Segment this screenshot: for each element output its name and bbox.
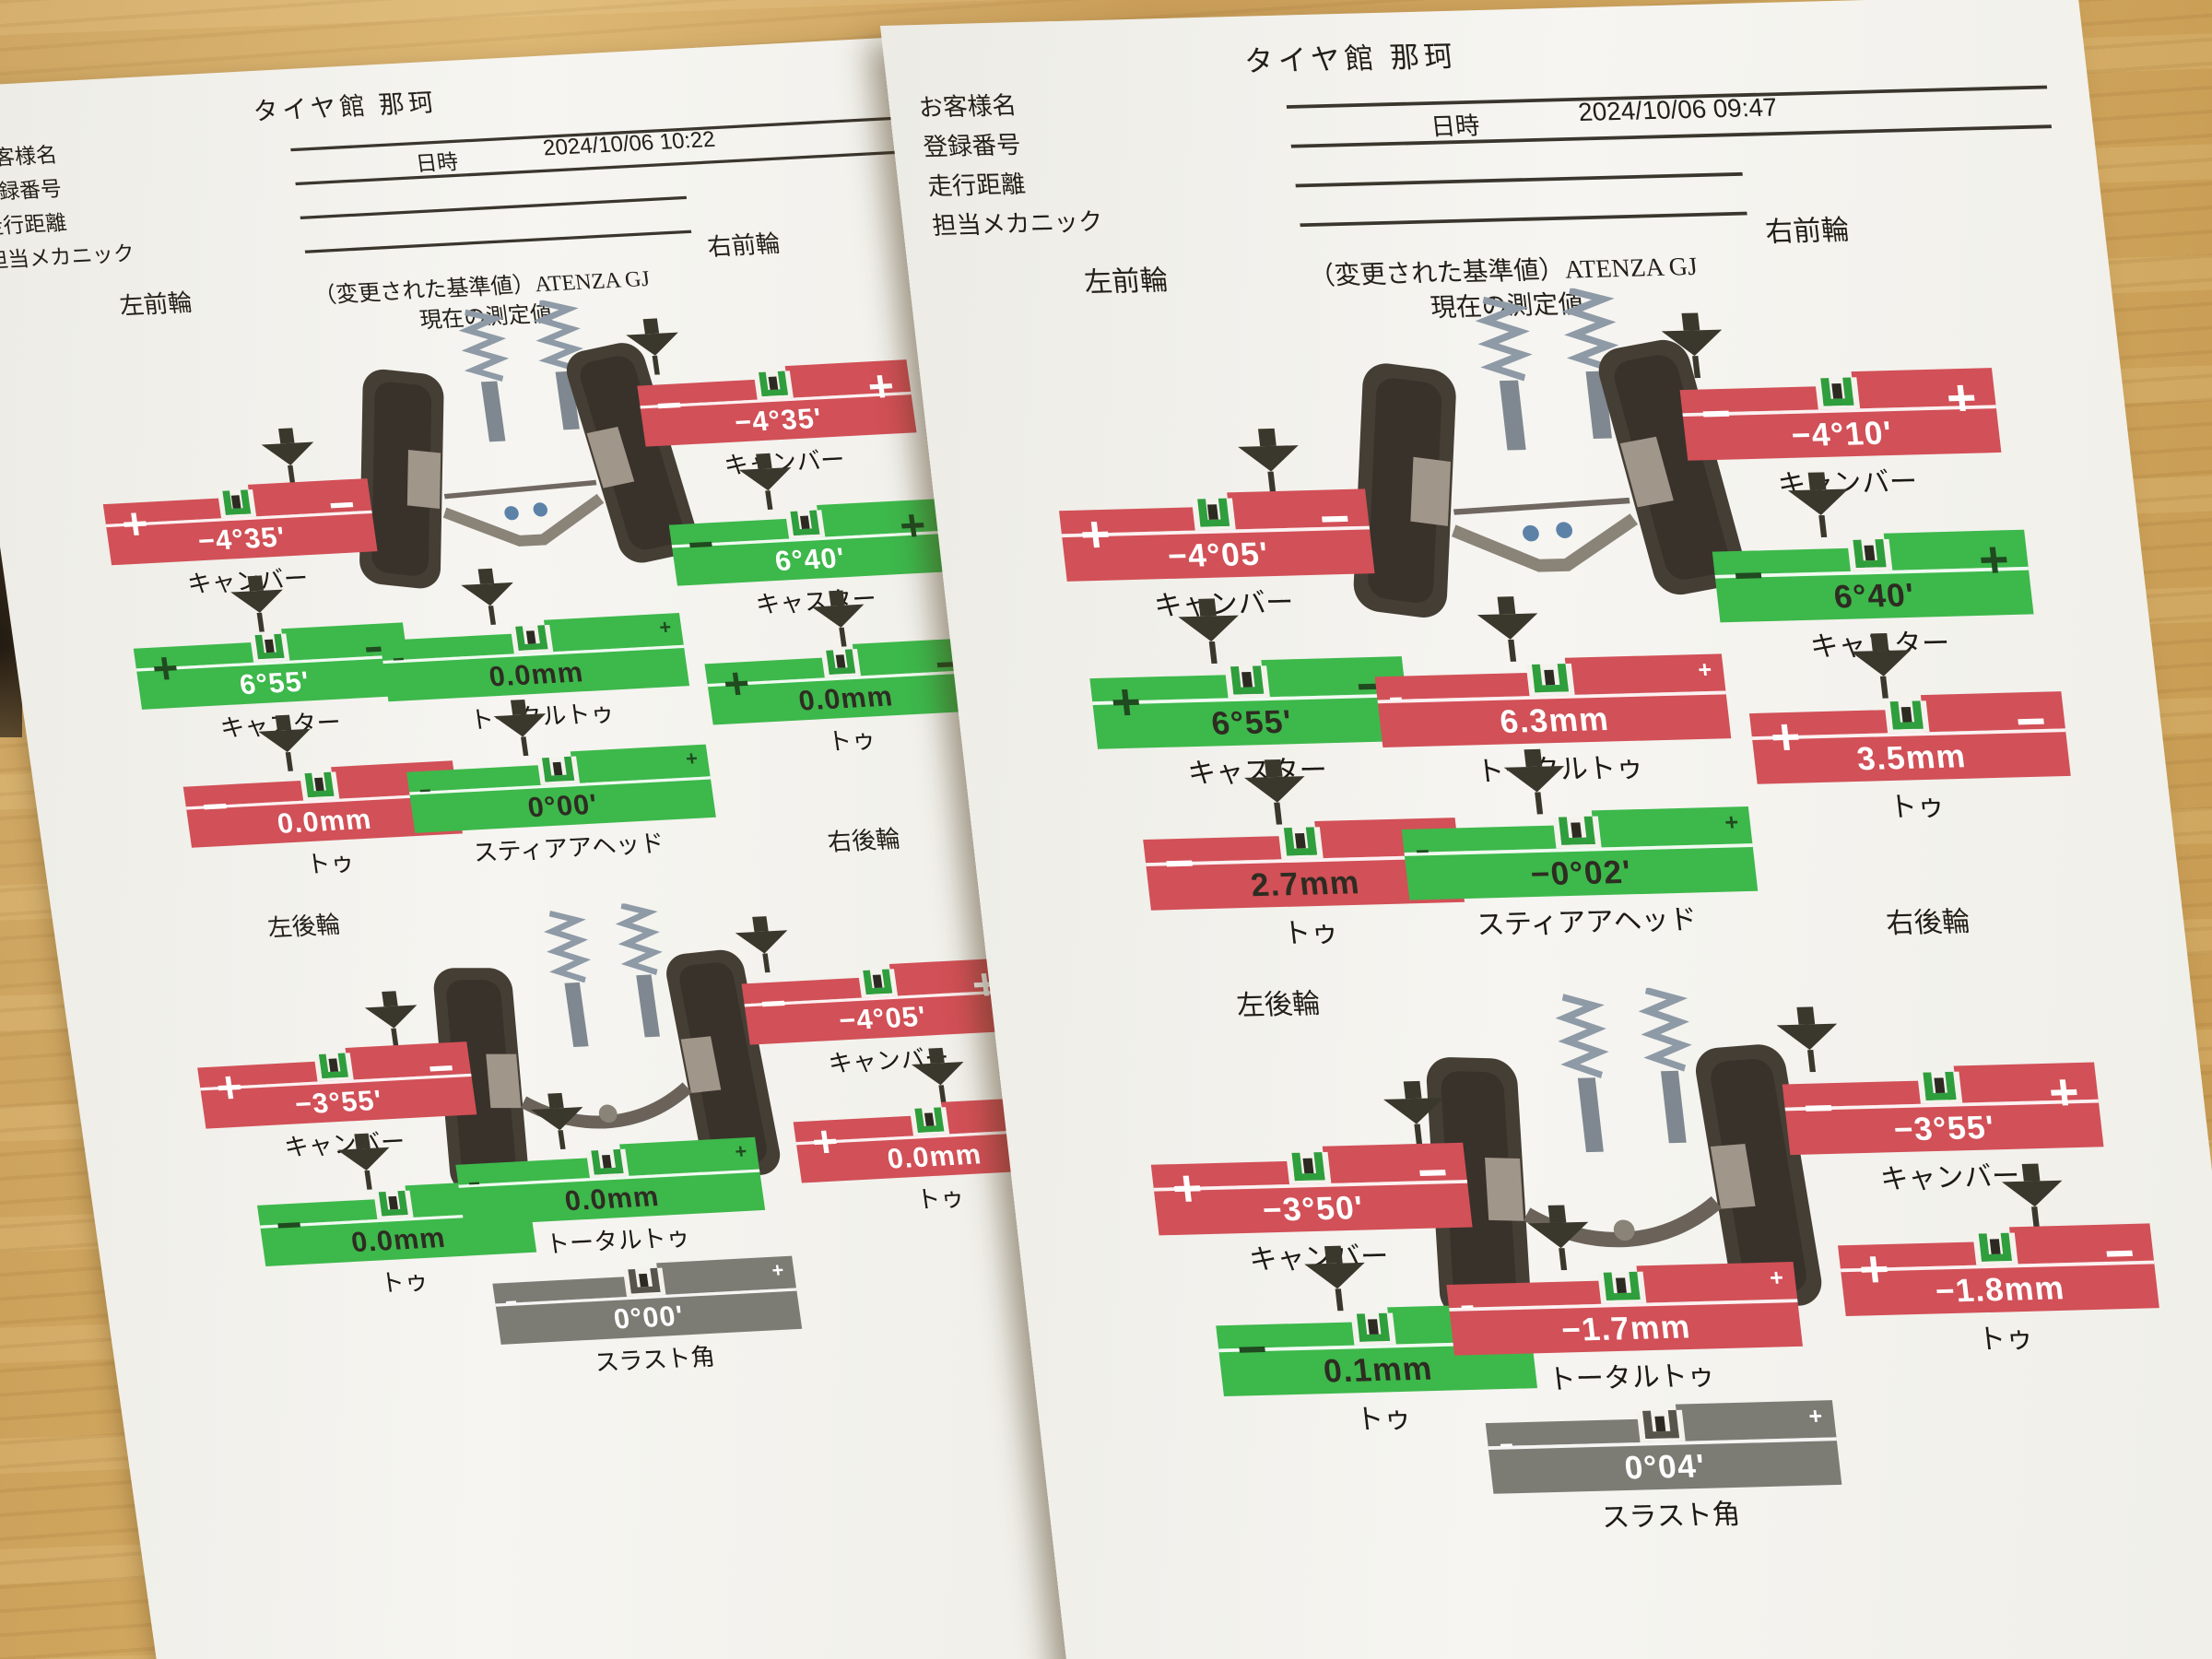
sign-right: −	[1317, 494, 1353, 546]
mechanic-label: 担当メカニック	[0, 237, 136, 275]
gauge-thrust-angle: 0°00' − + スラスト角	[483, 1202, 807, 1387]
center-notch	[1816, 377, 1860, 409]
gauge-bar: −0°02' − +	[1400, 806, 1758, 897]
pointer-arrow-icon	[1242, 759, 1311, 825]
pointer-arrow-icon	[529, 1092, 589, 1151]
center-notch	[622, 1268, 665, 1297]
pointer-arrow-icon	[1302, 1245, 1371, 1312]
gauge-bar: −4°05' + −	[1057, 488, 1374, 578]
center-notch	[1918, 1072, 1962, 1104]
gauge-toe: 0.0mm + − トゥ	[695, 583, 990, 768]
gauge-bar: 0°00' − +	[405, 745, 715, 830]
pointer-arrow-icon	[1502, 748, 1571, 815]
pointer-arrow-icon	[1848, 632, 1916, 699]
center-notch	[218, 489, 256, 518]
sign-right: −	[2013, 697, 2049, 748]
pointer-arrow-icon	[1774, 1006, 1842, 1073]
gauge-bar: 6°55' + −	[132, 622, 413, 706]
center-notch	[1973, 1233, 2018, 1265]
sign-left: −	[1499, 1434, 1515, 1458]
sign-left: −	[1731, 550, 1767, 602]
center-notch	[754, 371, 793, 399]
blank-field-line	[300, 196, 688, 219]
blank-field-line	[305, 230, 692, 253]
mechanic-label: 担当メカニック	[930, 203, 1104, 242]
pointer-arrow-icon	[256, 714, 316, 773]
pointer-arrow-icon	[1176, 598, 1244, 665]
gauge-bar: 0°00' − +	[491, 1256, 802, 1342]
gauge-bar: −3°55' + −	[195, 1041, 477, 1125]
pointer-arrow-icon	[624, 317, 684, 376]
center-notch	[1192, 498, 1235, 530]
center-notch	[314, 1053, 353, 1081]
pointer-arrow-icon	[1526, 1205, 1594, 1271]
alignment-report-sheet-right: タイヤ館 那珂 お客様名 登録番号 走行距離 担当メカニック 日時 2024/1…	[880, 0, 2212, 1659]
gauge-value: −0°02'	[1405, 847, 1758, 900]
gauge-value: 0°04'	[1488, 1441, 1841, 1494]
blank-field-line	[1295, 172, 1742, 187]
mileage-label: 走行距離	[925, 166, 1027, 203]
gauge-bar: 6°40' − +	[1711, 530, 2033, 619]
sign-left: −	[1801, 1083, 1837, 1135]
pointer-arrow-icon	[335, 1132, 395, 1191]
pointer-arrow-icon	[362, 990, 422, 1049]
gauge-toe: −1.8mm + − トゥ	[1830, 1161, 2165, 1367]
sign-right: +	[1769, 1266, 1785, 1290]
gauge-bar: −3°50' + −	[1149, 1143, 1472, 1232]
center-notch	[1848, 539, 1892, 571]
sign-left: −	[1234, 1324, 1270, 1376]
pointer-arrow-icon	[910, 1047, 970, 1106]
wheel-label-front-right: 右前輪	[1706, 206, 1908, 252]
gauge-bar: 6°55' + −	[1088, 656, 1411, 746]
center-notch	[1636, 1410, 1685, 1442]
center-notch	[910, 1107, 948, 1135]
gauge-thrust-angle: 0°04' − + スラスト角	[1477, 1337, 1847, 1544]
pointer-arrow-icon	[1999, 1163, 2067, 1230]
sign-left: −	[1459, 1296, 1476, 1320]
sign-right: +	[1976, 535, 2012, 586]
center-notch	[510, 625, 553, 653]
center-notch	[1597, 1272, 1646, 1304]
pointer-arrow-icon	[491, 699, 551, 758]
datetime-label: 日時	[1429, 107, 1481, 143]
sign-right: +	[1724, 811, 1740, 835]
gauge-bar: −4°35' + −	[101, 478, 377, 562]
center-notch	[1287, 1152, 1331, 1184]
blank-field-line	[1300, 212, 1747, 227]
pointer-arrow-icon	[1660, 312, 1728, 379]
gauge-bar: −4°10' − +	[1678, 368, 2001, 457]
registration-number-label: 登録番号	[921, 126, 1022, 163]
pointer-arrow-icon	[459, 568, 519, 627]
wheel-label-rear-left: 左後輪	[216, 902, 391, 947]
sign-left: +	[1109, 677, 1145, 729]
gauge-bar: 3.5mm + −	[1747, 691, 2070, 781]
center-notch	[536, 756, 580, 784]
customer-name-label: お客様名	[0, 138, 59, 172]
gauge-bar: −1.8mm + −	[1836, 1223, 2159, 1312]
center-notch	[1525, 664, 1574, 696]
sign-right: +	[1807, 1406, 1824, 1430]
gauge-bar: 0.0mm − +	[378, 613, 688, 699]
datetime-value: 2024/10/06 10:22	[541, 126, 716, 161]
sign-left: +	[1768, 712, 1804, 764]
blank-field-line	[1291, 124, 2052, 147]
center-notch	[1552, 817, 1601, 849]
gauge-bar: 0.0mm + −	[703, 638, 984, 722]
pointer-arrow-icon	[1382, 1080, 1450, 1147]
gauge-label: スラスト角	[1494, 1488, 1847, 1538]
gauge-label: トゥ	[1846, 1312, 2164, 1360]
wheel-label-front-left: 左前輪	[1025, 255, 1227, 301]
center-notch	[300, 771, 339, 800]
center-notch	[785, 510, 824, 538]
gauge-toe: 3.5mm + − トゥ	[1740, 629, 2076, 834]
customer-name-label: お客様名	[917, 87, 1018, 124]
center-notch	[1885, 700, 1929, 733]
datetime-label: 日時	[414, 146, 460, 178]
pointer-arrow-icon	[1476, 596, 1544, 663]
pointer-arrow-icon	[259, 427, 319, 486]
sign-right: −	[2101, 1229, 2137, 1280]
sign-left: +	[1170, 1163, 1206, 1215]
registration-number-label: 登録番号	[0, 172, 64, 206]
sign-left: −	[1699, 389, 1735, 441]
sign-left: −	[1388, 688, 1405, 712]
shop-title: タイヤ館 那珂	[896, 24, 1806, 89]
wheel-label-rear-left: 左後輪	[1177, 979, 1379, 1025]
gauge-bar: 6.3mm − +	[1373, 653, 1731, 744]
pointer-arrow-icon	[1235, 428, 1303, 494]
gauge-bar: 6°40' − +	[667, 499, 948, 582]
center-notch	[821, 649, 860, 677]
center-notch	[1351, 1313, 1395, 1346]
center-notch	[585, 1149, 629, 1178]
photo-scene: タイヤ館 那珂 お客様名 登録番号 走行距離 担当メカニック 日時 2024/1…	[0, 0, 2212, 1659]
center-notch	[1225, 665, 1269, 698]
pointer-arrow-icon	[228, 574, 288, 633]
center-notch	[1278, 827, 1323, 859]
gauge-bar: 0°04' − +	[1484, 1400, 1841, 1490]
gauge-bar: −4°35' − +	[636, 359, 917, 443]
gauge-bar: −1.7mm − +	[1445, 1262, 1803, 1352]
sign-left: −	[1161, 839, 1197, 890]
gauge-steering-ahead: −0°02' − + スティアアヘッド	[1393, 744, 1763, 950]
sign-left: +	[1077, 510, 1113, 561]
pointer-arrow-icon	[810, 589, 870, 648]
wheel-label-rear-right: 右後輪	[1827, 897, 2029, 943]
pointer-arrow-icon	[736, 453, 796, 512]
gauge-label: トゥ	[1758, 780, 2076, 829]
gauge-bar: −3°55' − +	[1781, 1063, 2103, 1152]
pointer-arrow-icon	[734, 915, 794, 974]
center-notch	[251, 633, 289, 662]
gauge-value: 6.3mm	[1378, 694, 1731, 747]
sign-left: −	[1415, 841, 1431, 865]
sign-right: +	[1697, 659, 1713, 683]
gauge-bar: −4°05' − +	[740, 958, 1021, 1041]
sign-right: −	[1415, 1147, 1451, 1199]
sign-right: +	[1944, 373, 1980, 425]
gauge-label: スティアアヘッド	[1410, 894, 1763, 944]
wheel-label-rear-right: 右後輪	[776, 817, 951, 861]
sign-left: +	[1856, 1244, 1892, 1296]
mileage-label: 走行距離	[0, 206, 68, 241]
pointer-arrow-icon	[1786, 472, 1854, 538]
center-notch	[374, 1191, 413, 1219]
gauge-steering-ahead: 0°00' − + スティアアヘッド	[397, 690, 722, 876]
sign-right: +	[2046, 1067, 2082, 1119]
center-notch	[858, 969, 897, 997]
datetime-value: 2024/10/06 09:47	[1577, 92, 1779, 127]
